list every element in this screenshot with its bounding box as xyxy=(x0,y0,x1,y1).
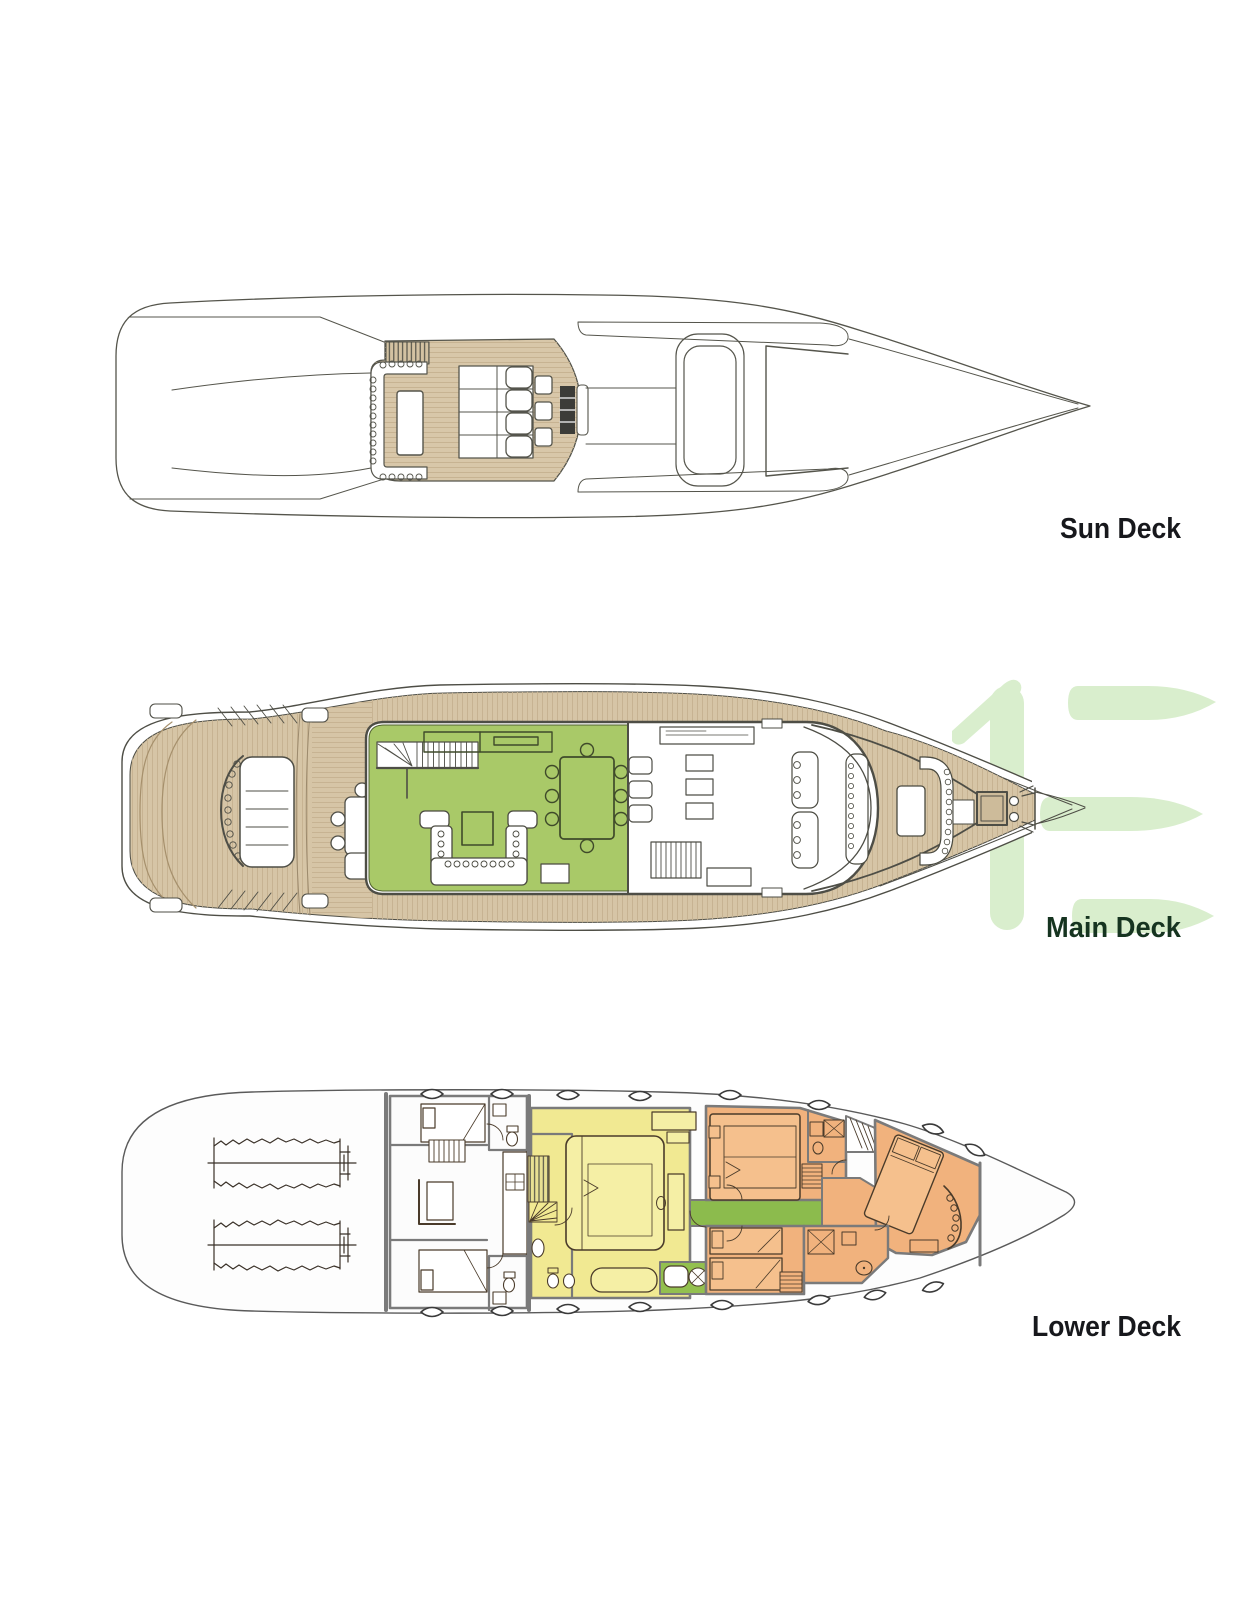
svg-text:Sun Deck: Sun Deck xyxy=(1060,513,1182,545)
svg-text:Lower Deck: Lower Deck xyxy=(1032,1311,1182,1343)
svg-text:Main Deck: Main Deck xyxy=(1046,912,1182,944)
